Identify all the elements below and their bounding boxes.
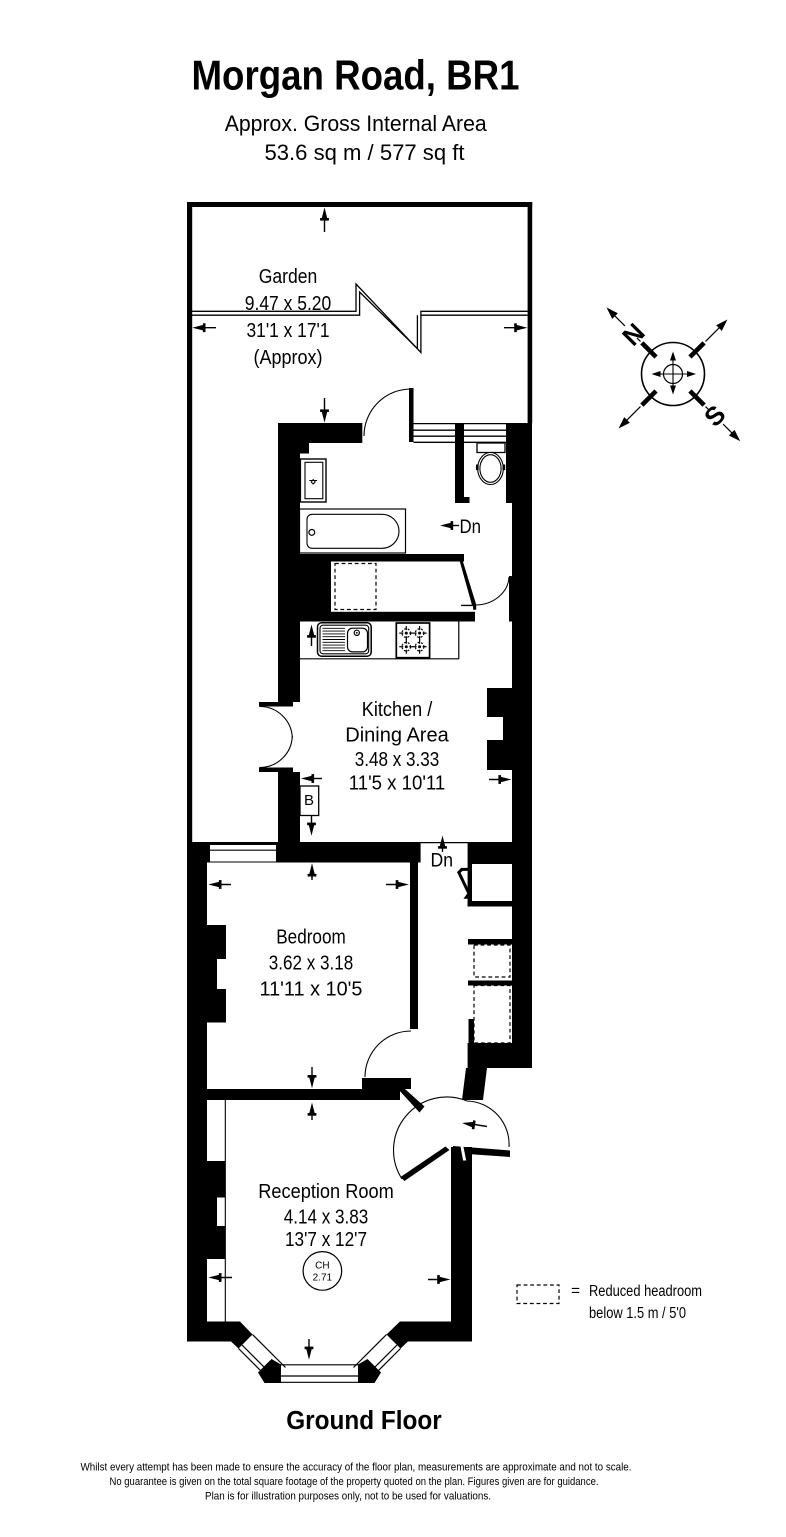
svg-text:53.6 sq m / 577 sq ft: 53.6 sq m / 577 sq ft	[265, 140, 465, 165]
svg-text:3.62 x 3.18: 3.62 x 3.18	[269, 953, 354, 975]
svg-text:Reception Room: Reception Room	[258, 1181, 394, 1203]
svg-text:(Approx): (Approx)	[254, 347, 323, 369]
svg-text:11'5 x 10'11: 11'5 x 10'11	[349, 773, 446, 795]
svg-text:Approx. Gross Internal Area: Approx. Gross Internal Area	[225, 111, 488, 136]
svg-text:11'11 x 10'5: 11'11 x 10'5	[260, 979, 363, 1001]
svg-text:Dn: Dn	[431, 850, 454, 872]
svg-text:3.48 x 3.33: 3.48 x 3.33	[355, 749, 440, 771]
svg-text:=: =	[571, 1283, 580, 1300]
svg-text:Garden: Garden	[259, 266, 318, 288]
svg-text:Morgan Road, BR1: Morgan Road, BR1	[192, 52, 520, 99]
svg-text:No guarantee is given on the t: No guarantee is given on the total squar…	[110, 1476, 599, 1488]
svg-text:Reduced headroom: Reduced headroom	[589, 1283, 702, 1300]
svg-text:2.71: 2.71	[313, 1273, 333, 1284]
svg-text:Dining Area: Dining Area	[345, 725, 449, 747]
svg-text:Dn: Dn	[460, 516, 482, 538]
svg-text:13'7 x 12'7: 13'7 x 12'7	[285, 1229, 367, 1251]
svg-text:Ground Floor: Ground Floor	[286, 1407, 442, 1435]
svg-text:Bedroom: Bedroom	[276, 927, 346, 949]
svg-text:B: B	[304, 792, 314, 809]
svg-text:Kitchen /: Kitchen /	[362, 699, 433, 721]
svg-text:Plan is for illustration purpo: Plan is for illustration purposes only, …	[205, 1491, 491, 1503]
svg-text:below 1.5 m / 5'0: below 1.5 m / 5'0	[589, 1305, 686, 1322]
svg-text:4.14 x 3.83: 4.14 x 3.83	[284, 1206, 369, 1228]
svg-text:CH: CH	[315, 1261, 329, 1272]
svg-text:31'1 x 17'1: 31'1 x 17'1	[247, 320, 330, 342]
svg-text:Whilst every attempt has been: Whilst every attempt has been made to en…	[81, 1462, 632, 1474]
